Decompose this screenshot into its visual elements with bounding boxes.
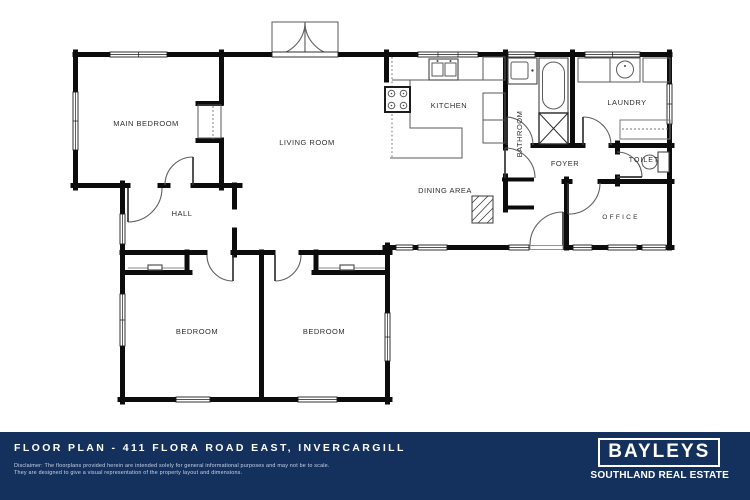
vanity-sink	[508, 58, 537, 84]
room-label-main-bedroom: MAIN BEDROOM	[113, 119, 179, 128]
stove	[385, 87, 410, 112]
window	[110, 52, 167, 57]
bayleys-wordmark: BAYLEYS	[598, 438, 720, 467]
room-label-living-room: LIVING ROOM	[279, 138, 335, 147]
laundry-bench	[620, 120, 670, 139]
room-label-office: OFFICE	[602, 214, 639, 221]
bedroom-right-door	[275, 255, 301, 281]
french-doors	[272, 22, 338, 57]
logo-subtitle: SOUTHLAND REAL ESTATE	[590, 470, 729, 481]
laundry-door	[583, 117, 611, 145]
laundry-sink	[610, 58, 640, 82]
floor-plan: MAIN BEDROOM LIVING ROOM KITCHEN BATHROO…	[0, 0, 750, 432]
room-label-kitchen: KITCHEN	[431, 101, 467, 110]
window	[585, 52, 640, 57]
shower	[539, 113, 568, 144]
window	[573, 245, 592, 250]
fixtures	[128, 57, 670, 270]
walls	[73, 52, 672, 402]
window	[642, 245, 666, 250]
back-door	[530, 212, 563, 250]
window	[385, 313, 390, 361]
room-label-hall: HALL	[172, 209, 193, 218]
room-label-laundry: LAUNDRY	[607, 98, 646, 107]
disclaimer: Disclaimer: The floorplans provided here…	[14, 463, 330, 477]
windows	[73, 52, 672, 402]
bayleys-logo: BAYLEYS SOUTHLAND REAL ESTATE	[589, 438, 731, 481]
bathtub	[539, 58, 568, 113]
office-door	[568, 183, 600, 214]
room-label-bedroom-left: BEDROOM	[176, 327, 218, 336]
disclaimer-line-1: Disclaimer: The floorplans provided here…	[14, 463, 330, 470]
room-label-toilet: TOILET	[629, 157, 659, 164]
room-label-bedroom-right: BEDROOM	[303, 327, 345, 336]
room-label-bathroom: BATHROOM	[515, 111, 524, 158]
room-label-foyer: FOYER	[551, 159, 579, 168]
window	[176, 397, 210, 402]
window	[418, 52, 478, 57]
window	[418, 245, 447, 250]
footer-bar: FLOOR PLAN - 411 FLORA ROAD EAST, INVERC…	[0, 432, 750, 500]
main-bedroom-closet	[198, 105, 221, 139]
disclaimer-line-2: They are designed to give a visual repre…	[14, 470, 330, 477]
room-label-dining-area: DINING AREA	[418, 186, 472, 195]
screenshot: MAIN BEDROOM LIVING ROOM KITCHEN BATHROO…	[0, 0, 750, 500]
toilet-door	[617, 152, 642, 177]
window	[120, 214, 125, 244]
floor-plan-drawing: MAIN BEDROOM LIVING ROOM KITCHEN BATHROO…	[0, 0, 750, 432]
window	[73, 92, 78, 150]
window	[608, 245, 637, 250]
window	[667, 84, 672, 124]
heater-hatch	[472, 196, 493, 223]
kitchen-cabinets	[483, 57, 505, 143]
bedroom-right-closet	[318, 265, 385, 270]
kitchen-sink	[429, 59, 458, 80]
window	[396, 245, 413, 250]
main-bedroom-door	[165, 157, 193, 185]
window	[120, 294, 125, 346]
window	[298, 397, 337, 402]
plan-title: FLOOR PLAN - 411 FLORA ROAD EAST, INVERC…	[14, 442, 406, 454]
window	[509, 245, 529, 250]
hall-door	[128, 188, 162, 222]
bedroom-left-door	[207, 255, 233, 281]
window	[508, 52, 535, 57]
bedroom-left-closet	[128, 265, 184, 270]
